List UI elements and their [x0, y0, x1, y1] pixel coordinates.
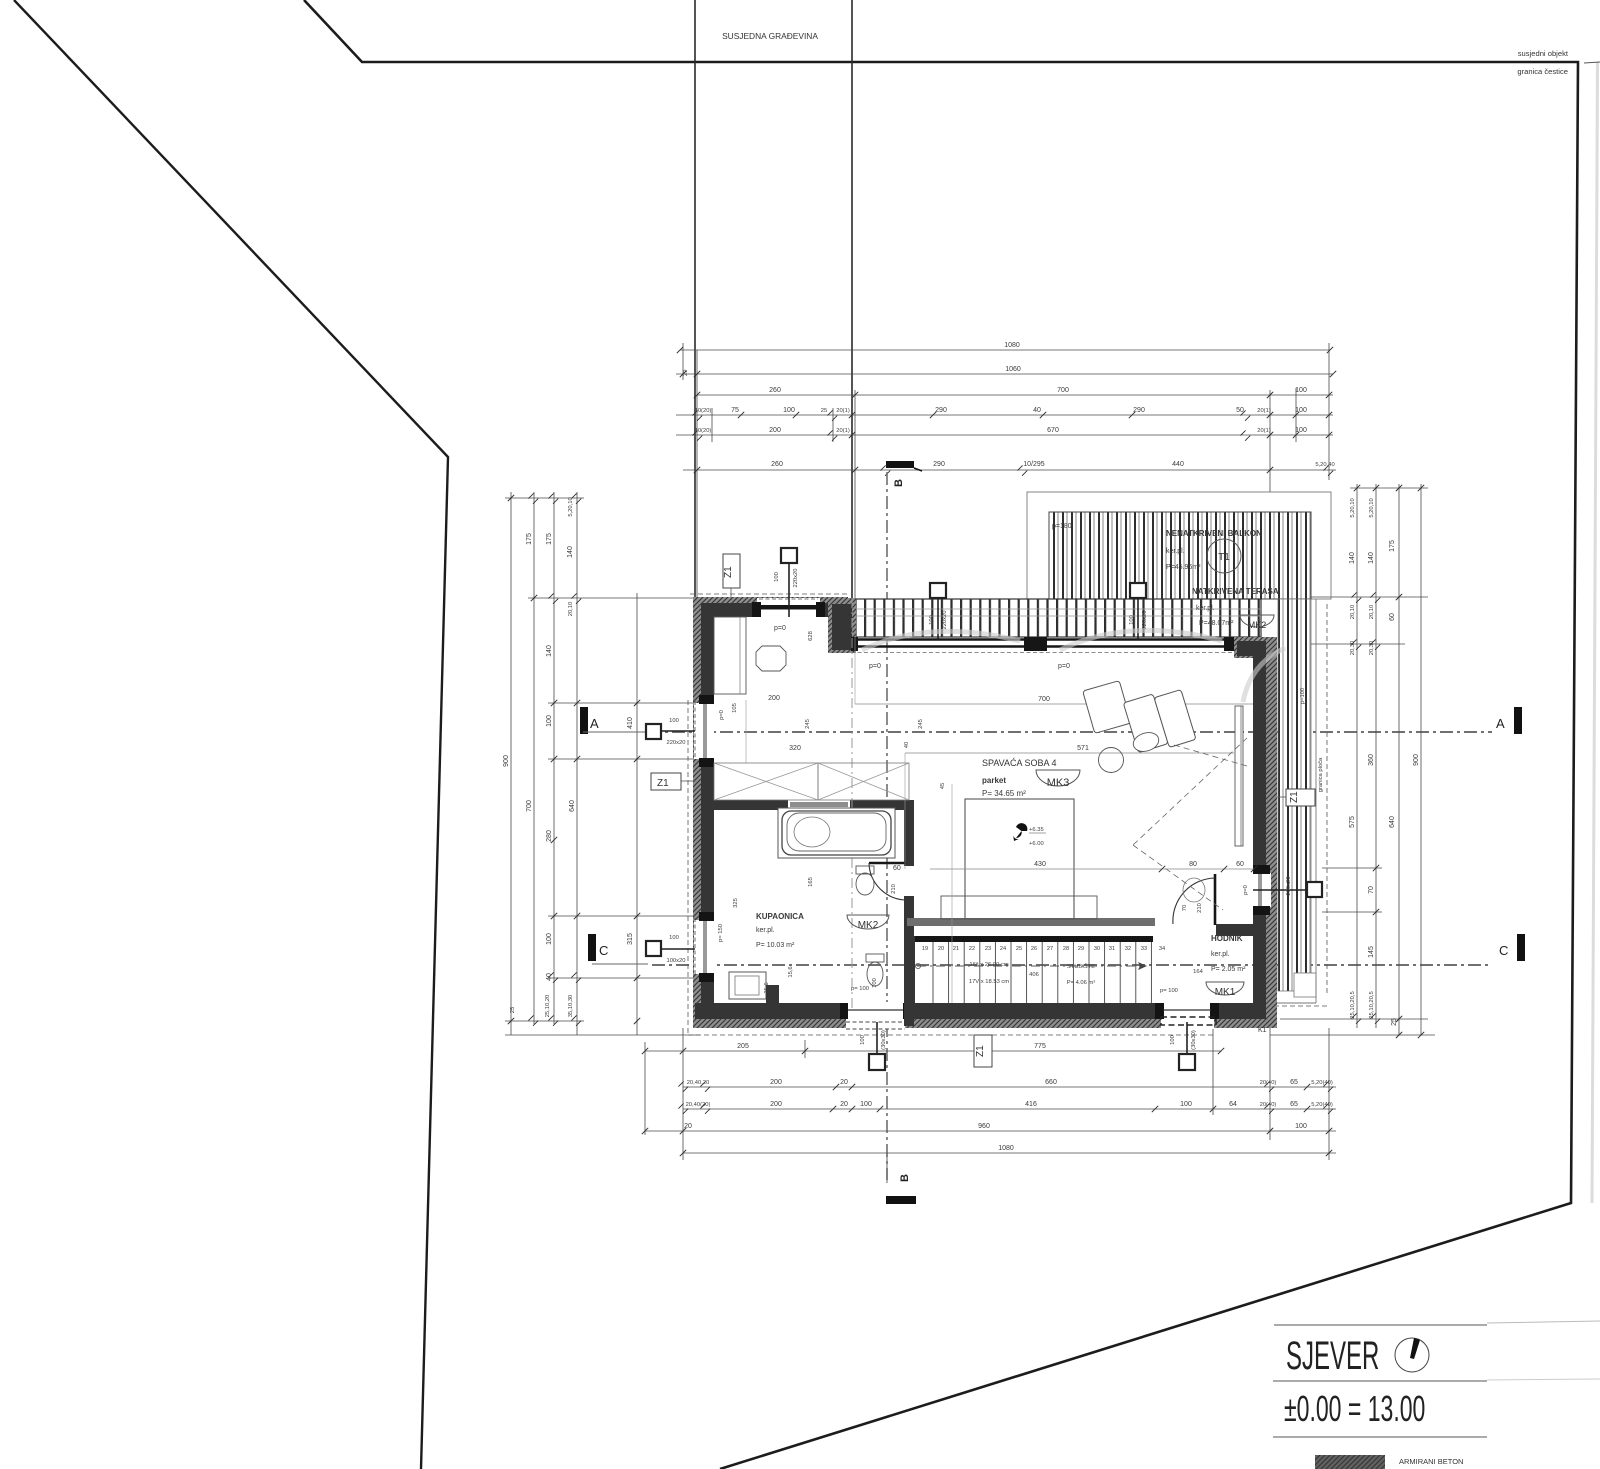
svg-text:+6.00: +6.00	[1029, 841, 1044, 847]
svg-text:140: 140	[1349, 552, 1356, 564]
svg-text:(30x30): (30x30)	[1191, 1030, 1197, 1050]
svg-text:32: 32	[1125, 946, 1131, 952]
svg-text:210: 210	[1197, 903, 1203, 913]
svg-text:200: 200	[770, 1101, 782, 1108]
svg-text:175: 175	[1389, 540, 1396, 552]
svg-text:60: 60	[1389, 613, 1396, 621]
svg-text:B: B	[899, 1174, 911, 1182]
svg-text:p= 100: p= 100	[1160, 988, 1178, 994]
svg-text:220x20: 220x20	[793, 568, 799, 587]
svg-text:p=100: p=100	[1300, 688, 1306, 704]
svg-text:Z1: Z1	[975, 1045, 986, 1057]
svg-text:70: 70	[1182, 905, 1188, 911]
svg-text:325: 325	[733, 898, 739, 908]
svg-text:SJEVER: SJEVER	[1286, 1333, 1379, 1378]
svg-text:100: 100	[669, 718, 679, 724]
svg-text:25,10,20,5: 25,10,20,5	[1369, 991, 1375, 1018]
svg-text:64: 64	[1229, 1101, 1237, 1108]
svg-text:700: 700	[526, 800, 533, 812]
svg-text:10(20): 10(20)	[695, 428, 712, 434]
svg-text:+6.35: +6.35	[1029, 827, 1044, 833]
svg-text:ker.pl.: ker.pl.	[1196, 605, 1215, 612]
svg-text:100: 100	[860, 1035, 866, 1045]
svg-text:100: 100	[1180, 1101, 1192, 1108]
svg-text:A: A	[1496, 716, 1505, 731]
svg-text:140: 140	[546, 645, 553, 657]
svg-text:571: 571	[1077, 745, 1089, 752]
svg-text:205: 205	[737, 1043, 749, 1050]
svg-text:290: 290	[933, 461, 945, 468]
svg-text:320: 320	[789, 745, 801, 752]
svg-text:900: 900	[503, 755, 510, 767]
svg-text:29: 29	[1078, 946, 1084, 952]
svg-text:100: 100	[929, 615, 935, 625]
svg-text:80: 80	[1189, 861, 1197, 868]
svg-text:23: 23	[985, 946, 991, 952]
svg-text:16š x 26.00 cm: 16š x 26.00 cm	[969, 962, 1008, 968]
svg-text:20: 20	[684, 1123, 692, 1130]
svg-text:430: 430	[1034, 861, 1046, 868]
svg-text:100: 100	[1295, 427, 1307, 434]
svg-text:100: 100	[1129, 615, 1135, 625]
svg-text:210: 210	[891, 884, 897, 894]
svg-text:440: 440	[1172, 461, 1184, 468]
svg-text:28: 28	[1063, 946, 1069, 952]
svg-text:200: 200	[769, 427, 781, 434]
svg-text:65: 65	[1290, 1079, 1298, 1086]
svg-text:31: 31	[1109, 946, 1115, 952]
svg-text:MK2: MK2	[1248, 620, 1267, 630]
svg-text:25: 25	[821, 408, 827, 414]
svg-text:1080: 1080	[998, 1145, 1014, 1152]
svg-text:290: 290	[935, 407, 947, 414]
svg-text:p=0: p=0	[719, 710, 725, 720]
svg-text:A: A	[590, 716, 599, 731]
svg-text:100: 100	[1295, 407, 1307, 414]
svg-text:100: 100	[546, 933, 553, 945]
svg-text:164: 164	[1193, 969, 1203, 975]
svg-text:ker.pl.: ker.pl.	[756, 927, 775, 934]
svg-text:20,30: 20,30	[1369, 641, 1375, 656]
svg-text:17V x 18.53 cm: 17V x 18.53 cm	[969, 979, 1009, 985]
svg-text:20,10: 20,10	[568, 602, 574, 617]
svg-text:60: 60	[893, 865, 901, 872]
svg-text:Z1: Z1	[1289, 791, 1300, 803]
svg-text:5,20(40): 5,20(40)	[1311, 1080, 1333, 1086]
svg-text:900: 900	[1413, 754, 1420, 766]
svg-text:5,20,10: 5,20,10	[1350, 498, 1356, 517]
svg-text:200: 200	[768, 695, 780, 702]
svg-text:20(1): 20(1)	[836, 428, 850, 434]
svg-text:p=0: p=0	[774, 625, 786, 632]
svg-text:20,10: 20,10	[1350, 605, 1356, 620]
svg-text:65: 65	[1290, 1101, 1298, 1108]
svg-text:220x20: 220x20	[942, 610, 948, 629]
svg-text:45: 45	[940, 783, 946, 789]
svg-text:P=45.96m²: P=45.96m²	[1166, 564, 1201, 571]
svg-text:40: 40	[546, 973, 553, 981]
svg-text:ker.pl.: ker.pl.	[1166, 548, 1185, 555]
svg-text:33: 33	[1141, 946, 1147, 952]
svg-text:245: 245	[918, 719, 924, 729]
svg-text:p=0: p=0	[1058, 663, 1070, 670]
svg-text:100: 100	[1295, 1123, 1307, 1130]
svg-text:MK2: MK2	[858, 920, 879, 931]
svg-text:19: 19	[922, 946, 928, 952]
svg-text:22: 22	[969, 946, 975, 952]
svg-text:5,20,40: 5,20,40	[1315, 462, 1334, 468]
svg-text:P=48.07m²: P=48.07m²	[1199, 620, 1234, 627]
svg-text:24: 24	[1000, 946, 1006, 952]
svg-text:140: 140	[1368, 552, 1375, 564]
svg-text:C: C	[1499, 943, 1508, 958]
svg-text:25,10,20: 25,10,20	[545, 995, 551, 1018]
svg-text:220x20: 220x20	[1142, 610, 1148, 629]
svg-text:960: 960	[978, 1123, 990, 1130]
svg-text:STUBIŠTE: STUBIŠTE	[1067, 963, 1095, 970]
svg-text:40: 40	[904, 742, 910, 748]
svg-text:20,40,20: 20,40,20	[687, 1080, 710, 1086]
svg-text:245: 245	[805, 719, 811, 729]
svg-text:700: 700	[1057, 387, 1069, 394]
svg-text:p=180: p=180	[1052, 523, 1072, 530]
svg-text:5,20,10: 5,20,10	[568, 497, 574, 516]
svg-text:260: 260	[769, 387, 781, 394]
svg-text:KUPAONICA: KUPAONICA	[756, 912, 804, 921]
svg-text:26: 26	[1031, 946, 1037, 952]
svg-text:100x20: 100x20	[666, 958, 685, 964]
svg-text:p=0: p=0	[869, 663, 881, 670]
svg-text:T1: T1	[1218, 552, 1230, 563]
svg-text:100: 100	[783, 407, 795, 414]
svg-text:200: 200	[770, 1079, 782, 1086]
svg-text:20: 20	[840, 1101, 848, 1108]
svg-text:100: 100	[774, 572, 780, 582]
svg-text:ARMIRANI BETON: ARMIRANI BETON	[1399, 1457, 1463, 1466]
svg-text:ker.pl.: ker.pl.	[1211, 951, 1230, 958]
svg-text:20,40(20): 20,40(20)	[686, 1102, 711, 1108]
svg-text:220x20: 220x20	[666, 740, 685, 746]
svg-text:NENATKRIVENI BALKON: NENATKRIVENI BALKON	[1166, 529, 1262, 538]
svg-text:75: 75	[731, 407, 739, 414]
svg-text:20: 20	[683, 370, 689, 376]
svg-text:775: 775	[1034, 1043, 1046, 1050]
svg-text:P= 34.65 m²: P= 34.65 m²	[982, 789, 1026, 798]
svg-text:628: 628	[808, 631, 814, 641]
svg-text:670: 670	[1047, 427, 1059, 434]
svg-text:640: 640	[1389, 816, 1396, 828]
svg-text:20,30: 20,30	[1350, 641, 1356, 656]
svg-text:660: 660	[1045, 1079, 1057, 1086]
svg-text:B: B	[893, 479, 905, 487]
svg-text:640: 640	[569, 800, 576, 812]
svg-text:10/295: 10/295	[1023, 461, 1045, 468]
svg-text:20(1): 20(1)	[1257, 408, 1271, 414]
svg-text:SUSJEDNA GRAĐEVINA: SUSJEDNA GRAĐEVINA	[722, 31, 818, 41]
svg-text:p=0: p=0	[1243, 885, 1249, 895]
svg-text:260: 260	[771, 461, 783, 468]
svg-text:NATKRIVENA TERASA: NATKRIVENA TERASA	[1192, 587, 1279, 596]
svg-text:416: 416	[1025, 1101, 1037, 1108]
svg-text:165: 165	[808, 877, 814, 887]
svg-text:410: 410	[627, 717, 634, 729]
svg-text:10(20): 10(20)	[695, 408, 712, 414]
svg-text:20: 20	[840, 1079, 848, 1086]
svg-text:100: 100	[860, 1101, 872, 1108]
svg-text:100: 100	[669, 935, 679, 941]
svg-text:315: 315	[627, 933, 634, 945]
svg-text:175: 175	[526, 533, 533, 545]
svg-text:35,10,30: 35,10,30	[568, 995, 574, 1018]
svg-text:27: 27	[1047, 946, 1053, 952]
svg-text:20(40): 20(40)	[1260, 1080, 1277, 1086]
svg-text:50: 50	[1236, 407, 1244, 414]
svg-text:granica čestice: granica čestice	[1517, 67, 1568, 76]
svg-text:15,6: 15,6	[788, 966, 794, 977]
svg-text:700: 700	[1038, 696, 1050, 703]
svg-text:406: 406	[1029, 972, 1039, 978]
svg-text:575: 575	[1349, 816, 1356, 828]
svg-text:P= 2.05 m²: P= 2.05 m²	[1211, 966, 1246, 973]
svg-text:MK1: MK1	[1215, 987, 1236, 998]
svg-text:Z1: Z1	[723, 566, 734, 578]
svg-text:230x20: 230x20	[1286, 876, 1292, 895]
svg-text:290: 290	[1133, 407, 1145, 414]
svg-text:25: 25	[1016, 946, 1022, 952]
svg-text:100: 100	[1170, 1035, 1176, 1045]
svg-text:SPAVAĆA SOBA 4: SPAVAĆA SOBA 4	[982, 758, 1057, 768]
svg-text:20(40): 20(40)	[1260, 1102, 1277, 1108]
svg-text:105: 105	[732, 703, 738, 713]
svg-text:100: 100	[546, 715, 553, 727]
svg-text:60: 60	[1236, 861, 1244, 868]
svg-text:30: 30	[1094, 946, 1100, 952]
svg-text:parket: parket	[982, 776, 1006, 785]
svg-text:25,10,20,5: 25,10,20,5	[1350, 991, 1356, 1018]
svg-text:25: 25	[1391, 1018, 1398, 1026]
svg-text:21: 21	[953, 946, 959, 952]
svg-text:100: 100	[872, 978, 878, 988]
svg-text:C: C	[599, 943, 608, 958]
svg-text:±0.00 = 13.00: ±0.00 = 13.00	[1284, 1390, 1425, 1429]
svg-text:34: 34	[1159, 946, 1165, 952]
svg-text:20(1): 20(1)	[836, 408, 850, 414]
svg-text:140: 140	[567, 546, 574, 558]
svg-text:1060: 1060	[1005, 366, 1021, 373]
svg-text:K1: K1	[1258, 1027, 1267, 1034]
svg-text:p= 150: p= 150	[718, 924, 724, 942]
svg-text:5,20(40): 5,20(40)	[1311, 1102, 1333, 1108]
svg-text:granica ploča: granica ploča	[1318, 757, 1324, 792]
svg-text:susjedni objekt: susjedni objekt	[1518, 49, 1569, 58]
svg-text:P= 10.03 m²: P= 10.03 m²	[756, 942, 795, 949]
svg-text:1080: 1080	[1004, 342, 1020, 349]
svg-text:100: 100	[1295, 387, 1307, 394]
svg-text:360: 360	[1368, 754, 1375, 766]
svg-text:P= 4.06 m²: P= 4.06 m²	[1067, 980, 1096, 986]
svg-text:40: 40	[1033, 407, 1041, 414]
svg-text:Z1: Z1	[657, 778, 669, 789]
svg-text:MK3: MK3	[1047, 777, 1070, 789]
svg-text:(30x30): (30x30)	[881, 1030, 887, 1050]
svg-text:p= 100: p= 100	[851, 986, 869, 992]
svg-text:145: 145	[1368, 946, 1375, 958]
svg-text:20,10: 20,10	[1369, 605, 1375, 620]
svg-text:5,20,10: 5,20,10	[1369, 498, 1375, 517]
svg-text:20(1): 20(1)	[1257, 428, 1271, 434]
svg-text:280: 280	[546, 830, 553, 842]
svg-text:HODNIK: HODNIK	[1211, 934, 1243, 943]
svg-text:175: 175	[546, 533, 553, 545]
svg-text:20: 20	[938, 946, 944, 952]
svg-text:25: 25	[510, 1007, 516, 1013]
svg-text:70: 70	[1368, 886, 1375, 894]
